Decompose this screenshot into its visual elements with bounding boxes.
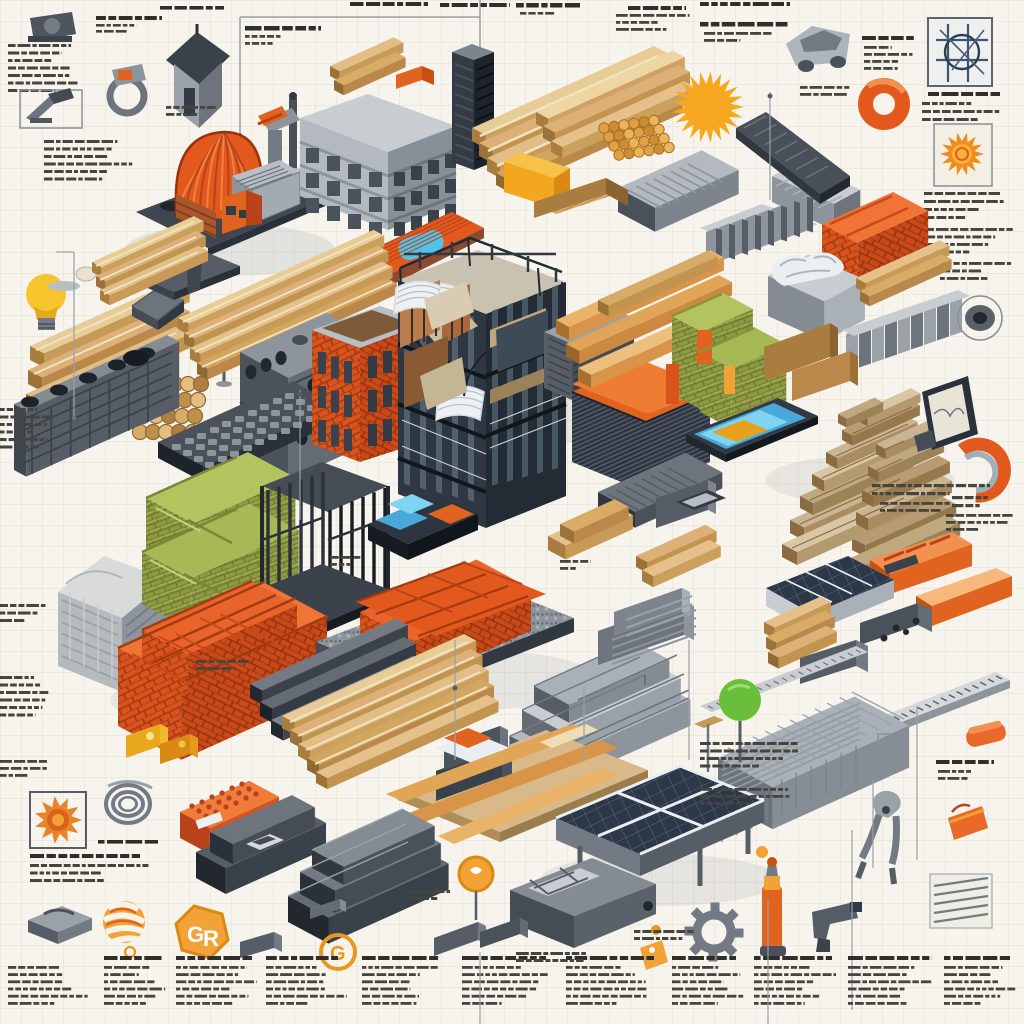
- svg-text:G: G: [187, 922, 204, 947]
- svg-text:R: R: [203, 926, 219, 951]
- svg-text:G: G: [330, 943, 346, 965]
